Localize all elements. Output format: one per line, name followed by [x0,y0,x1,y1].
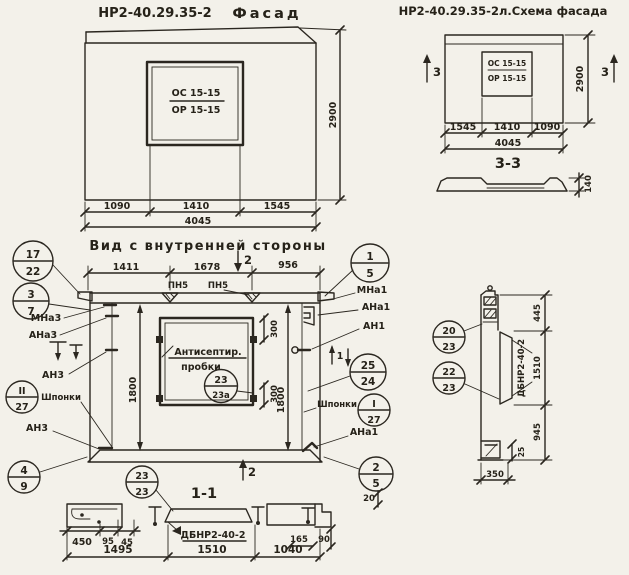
schema-dim-1545: 1545 [450,122,476,133]
lifting-loop-1 [162,293,178,302]
svg-text:I: I [372,399,376,410]
svg-text:25: 25 [361,360,376,372]
svg-text:23: 23 [442,342,455,353]
anchor-pin [149,507,161,524]
schema-view: ОС 15-15 ОР 15-15 3 3 2900 1545 1410 109… [423,31,618,197]
dim-25: 25 [517,447,526,457]
bottom-bracket [481,441,500,458]
dim-1495: 1495 [103,544,132,556]
facade-window-frame [147,62,243,145]
svg-text:5: 5 [372,478,379,490]
svg-text:4: 4 [20,465,27,477]
svg-text:24: 24 [361,376,376,388]
facade-dim-1545: 1545 [264,201,290,212]
section3-mark-left: 3 [433,65,441,79]
section-1-1: 23 23 1-1 ДБНР2-40-2 450 95 45 165 90 [60,466,382,561]
svg-text:23: 23 [135,471,148,482]
section11-title: 1-1 [191,486,217,502]
inner-dim-956: 956 [278,260,298,271]
label-mna3: МНа3 [31,313,61,324]
section1-number: 1 [337,351,344,362]
dim-445: 445 [533,304,543,322]
svg-text:9: 9 [20,481,27,493]
profile-left-channel [67,504,122,527]
win-dim-300-top: 300 [270,320,280,338]
label-ana1-bottom: АНа1 [350,427,378,438]
dim-1510: 1510 [197,544,226,556]
inner-view-heading: Вид с внутренней стороны [89,239,326,254]
svg-text:17: 17 [26,249,41,261]
window-note-line1: Антисептир. [174,347,241,358]
schema-title: НР2-40.29.35-2л.Схема фасада [399,4,608,18]
section2-arrow-bottom [239,459,247,468]
svg-text:2: 2 [372,462,379,474]
loop-label-1: ПН5 [168,281,188,291]
schema-dim-1090: 1090 [534,122,561,133]
section33-thickness-dim: 140 [584,175,594,193]
facade-window-mark-bot: ОР 15-15 [172,105,221,116]
label-an3: АН3 [42,370,64,381]
facade-top-band [86,27,316,43]
svg-text:27: 27 [367,415,380,426]
right-edge-section: ДБНР2-40-2 445 1510 945 350 25 20 23 22 … [433,286,552,484]
adjacent-panel-section [500,332,512,404]
facade-dim-1410: 1410 [183,201,210,212]
svg-text:27: 27 [15,402,28,413]
win-dim-300-bot: 300 [270,385,280,403]
schema-window-mark-bot: ОР 15-15 [488,74,526,83]
dim-1510-right: 1510 [533,356,543,380]
facade-title-code: НР2-40.29.35-2 [98,6,211,21]
inner-bottom-band [88,450,322,462]
edge-step-detail [304,307,314,325]
inner-dim-1800-left: 1800 [128,376,139,403]
label-mna1: МНа1 [357,285,387,296]
inner-view: ПН5 ПН5 Антисептир. пробки 1411 1678 956… [78,251,334,480]
svg-text:II: II [18,386,25,397]
panel-mark-label: ДБНР2-40-2 [181,530,246,541]
inner-dim-1411: 1411 [113,262,139,273]
svg-text:23: 23 [442,383,455,394]
section33-title: 3-3 [495,156,521,172]
facade-view: ОС 15-15 ОР 15-15 2900 1090 1410 1545 40… [81,26,346,231]
schema-height-dim: 2900 [575,65,586,92]
label-shponki-right: Шпонки [317,400,357,410]
dim-450: 450 [72,537,92,548]
facade-dim-total: 4045 [185,216,211,227]
inner-left-callouts: 17 22 3 7 МНа3 АНа3 АН3 II 27 Шпонки АН3… [6,241,118,493]
inner-top-band [90,293,320,303]
schema-window-mark-top: ОС 15-15 [488,59,526,68]
svg-text:23: 23 [214,375,227,386]
dim-20: 20 [363,494,375,504]
section3-arrow-right [610,54,618,63]
loop-label-2: ПН5 [208,281,228,291]
schema-dim-total: 4045 [495,138,521,149]
facade-title-word: Фасад [232,6,301,22]
svg-text:23а: 23а [212,391,230,401]
blueprint-page: НР2-40.29.35-2 Фасад НР2-40.29.35-2л.Схе… [0,0,629,575]
label-shponki-left: Шпонки [41,393,81,403]
svg-text:3: 3 [27,289,34,301]
section33-profile [437,178,567,191]
section3-arrow-left [423,54,431,63]
profile-right-step [315,504,331,527]
svg-text:20: 20 [442,326,456,337]
dim-945: 945 [533,423,543,441]
svg-text:22: 22 [26,266,41,278]
plug-mark [156,336,163,343]
svg-text:22: 22 [442,367,455,378]
section2-mark-bottom: 2 [248,465,256,479]
plug-mark [250,395,257,402]
plug-mark [250,336,257,343]
section3-mark-right: 3 [601,65,609,79]
facade-dim-1090: 1090 [104,201,131,212]
dim-1040: 1040 [273,544,302,556]
svg-text:23: 23 [135,487,148,498]
section2-mark-top: 2 [244,253,252,267]
inner-dim-1678: 1678 [194,262,221,273]
label-an3-bottom: АН3 [26,423,48,434]
section2-arrow-top [234,263,242,272]
label-ana1: АНа1 [362,302,390,313]
svg-text:5: 5 [366,268,373,280]
drawing-canvas: НР2-40.29.35-2 Фасад НР2-40.29.35-2л.Схе… [0,0,629,575]
anchor-pin [252,507,264,523]
plug-mark [156,395,163,402]
dim-350: 350 [486,470,504,480]
profile-middle-slab [165,509,252,522]
inner-right-callouts: 1 5 МНа1 АНа1 АН1 1 25 24 Шпонки I 27 АН… [292,244,393,491]
svg-text:1: 1 [366,251,373,263]
facade-window-mark-top: ОС 15-15 [172,88,221,99]
schema-dim-1410: 1410 [494,122,521,133]
label-an1: АН1 [363,321,385,332]
label-ana3: АНа3 [29,330,57,341]
adjacent-panel-mark: ДБНР2-40-2 [517,339,527,397]
facade-height-dim: 2900 [328,101,339,128]
